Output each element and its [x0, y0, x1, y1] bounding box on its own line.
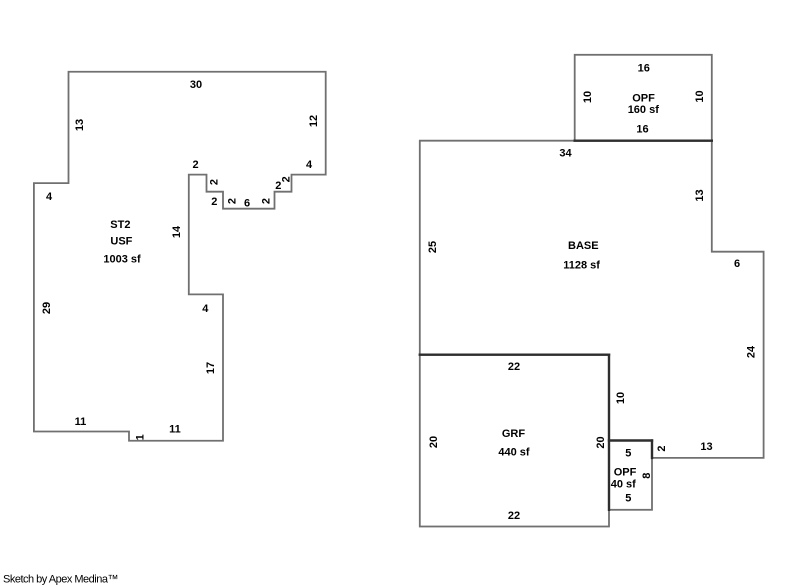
svg-text:16: 16	[636, 124, 648, 136]
svg-text:16: 16	[638, 62, 650, 74]
svg-text:6: 6	[734, 258, 740, 270]
svg-text:BASE: BASE	[568, 240, 599, 252]
svg-text:2: 2	[192, 159, 198, 171]
svg-text:1003 sf: 1003 sf	[103, 254, 141, 266]
svg-text:22: 22	[508, 510, 520, 522]
svg-text:10: 10	[694, 90, 706, 102]
svg-text:40 sf: 40 sf	[611, 478, 636, 490]
svg-text:GRF: GRF	[502, 428, 526, 440]
svg-text:30: 30	[190, 79, 202, 91]
svg-text:20: 20	[428, 436, 440, 448]
svg-text:6: 6	[244, 198, 250, 210]
svg-text:1128 sf: 1128 sf	[563, 259, 600, 271]
svg-text:4: 4	[306, 159, 313, 171]
svg-text:14: 14	[171, 225, 183, 238]
svg-text:5: 5	[625, 493, 631, 505]
svg-text:2: 2	[656, 446, 668, 452]
svg-text:2: 2	[209, 179, 221, 185]
svg-text:24: 24	[746, 345, 758, 358]
svg-text:OPF: OPF	[632, 93, 655, 105]
svg-text:12: 12	[308, 115, 320, 127]
svg-text:4: 4	[202, 303, 209, 315]
svg-text:4: 4	[46, 191, 53, 203]
svg-text:17: 17	[205, 362, 217, 374]
svg-text:160 sf: 160 sf	[628, 104, 660, 116]
svg-text:10: 10	[615, 392, 627, 404]
svg-text:11: 11	[169, 424, 181, 436]
svg-text:22: 22	[508, 361, 520, 373]
svg-text:13: 13	[700, 441, 712, 453]
svg-text:USF: USF	[110, 236, 132, 248]
svg-text:ST2: ST2	[110, 219, 130, 231]
svg-text:13: 13	[694, 189, 706, 201]
svg-text:11: 11	[75, 416, 87, 428]
svg-text:2: 2	[261, 198, 273, 204]
svg-text:OPF: OPF	[614, 466, 637, 478]
svg-text:8: 8	[641, 473, 653, 479]
svg-text:10: 10	[582, 91, 594, 103]
svg-text:34: 34	[559, 148, 572, 160]
svg-text:1: 1	[135, 434, 147, 440]
svg-text:25: 25	[427, 241, 439, 253]
svg-text:440 sf: 440 sf	[498, 447, 530, 459]
svg-text:13: 13	[74, 119, 86, 131]
svg-text:2: 2	[280, 176, 292, 182]
svg-text:29: 29	[41, 302, 53, 314]
svg-text:2: 2	[211, 196, 217, 208]
svg-text:2: 2	[226, 198, 238, 204]
svg-text:20: 20	[595, 436, 607, 448]
svg-text:Sketch by Apex Medina™: Sketch by Apex Medina™	[3, 574, 118, 586]
svg-text:5: 5	[625, 447, 631, 459]
